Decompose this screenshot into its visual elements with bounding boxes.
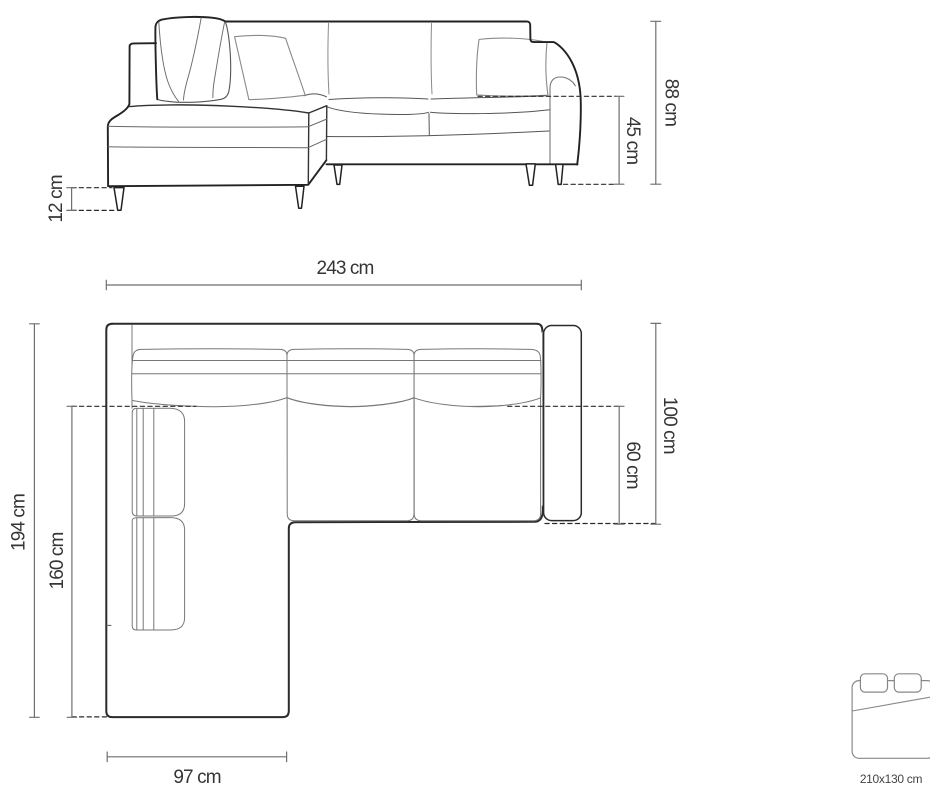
svg-text:45 cm: 45 cm: [622, 117, 643, 164]
svg-text:210x130 cm: 210x130 cm: [860, 772, 923, 786]
svg-text:243 cm: 243 cm: [317, 258, 374, 279]
svg-text:12 cm: 12 cm: [46, 175, 67, 222]
svg-text:88 cm: 88 cm: [660, 79, 681, 126]
svg-text:97 cm: 97 cm: [173, 767, 220, 788]
svg-text:194 cm: 194 cm: [9, 494, 30, 551]
svg-text:60 cm: 60 cm: [622, 441, 643, 488]
svg-text:160 cm: 160 cm: [47, 532, 68, 589]
svg-text:100 cm: 100 cm: [659, 397, 680, 454]
